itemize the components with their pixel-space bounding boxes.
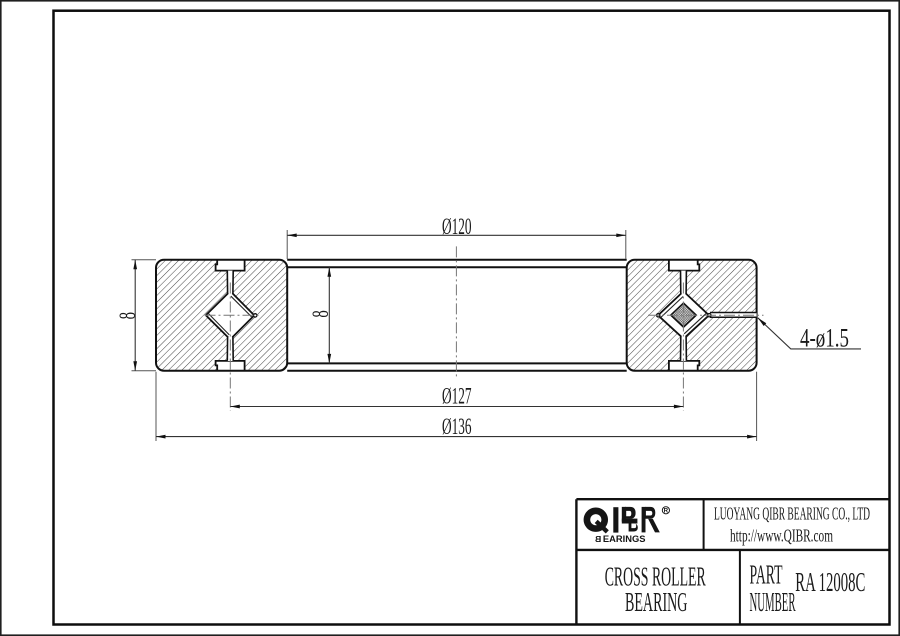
svg-text:Ø127: Ø127 bbox=[442, 384, 472, 409]
svg-text:PART: PART bbox=[750, 560, 783, 590]
svg-text:Ø120: Ø120 bbox=[442, 214, 472, 239]
svg-text:BEARING: BEARING bbox=[625, 587, 688, 617]
svg-text:NUMBER: NUMBER bbox=[750, 587, 796, 617]
svg-text:B: B bbox=[595, 534, 601, 544]
svg-text:8: 8 bbox=[308, 310, 333, 317]
svg-text:R: R bbox=[664, 508, 669, 515]
svg-text:EARINGS: EARINGS bbox=[603, 534, 646, 544]
svg-text:LUOYANG QIBR BEARING CO., LTD: LUOYANG QIBR BEARING CO., LTD bbox=[714, 504, 870, 524]
svg-text:8: 8 bbox=[115, 312, 140, 319]
svg-text:RA 12008C: RA 12008C bbox=[795, 567, 865, 597]
svg-text:4-ø1.5: 4-ø1.5 bbox=[800, 323, 849, 352]
svg-text:Ø136: Ø136 bbox=[442, 414, 472, 439]
svg-text:http://www.QIBR.com: http://www.QIBR.com bbox=[730, 526, 833, 546]
